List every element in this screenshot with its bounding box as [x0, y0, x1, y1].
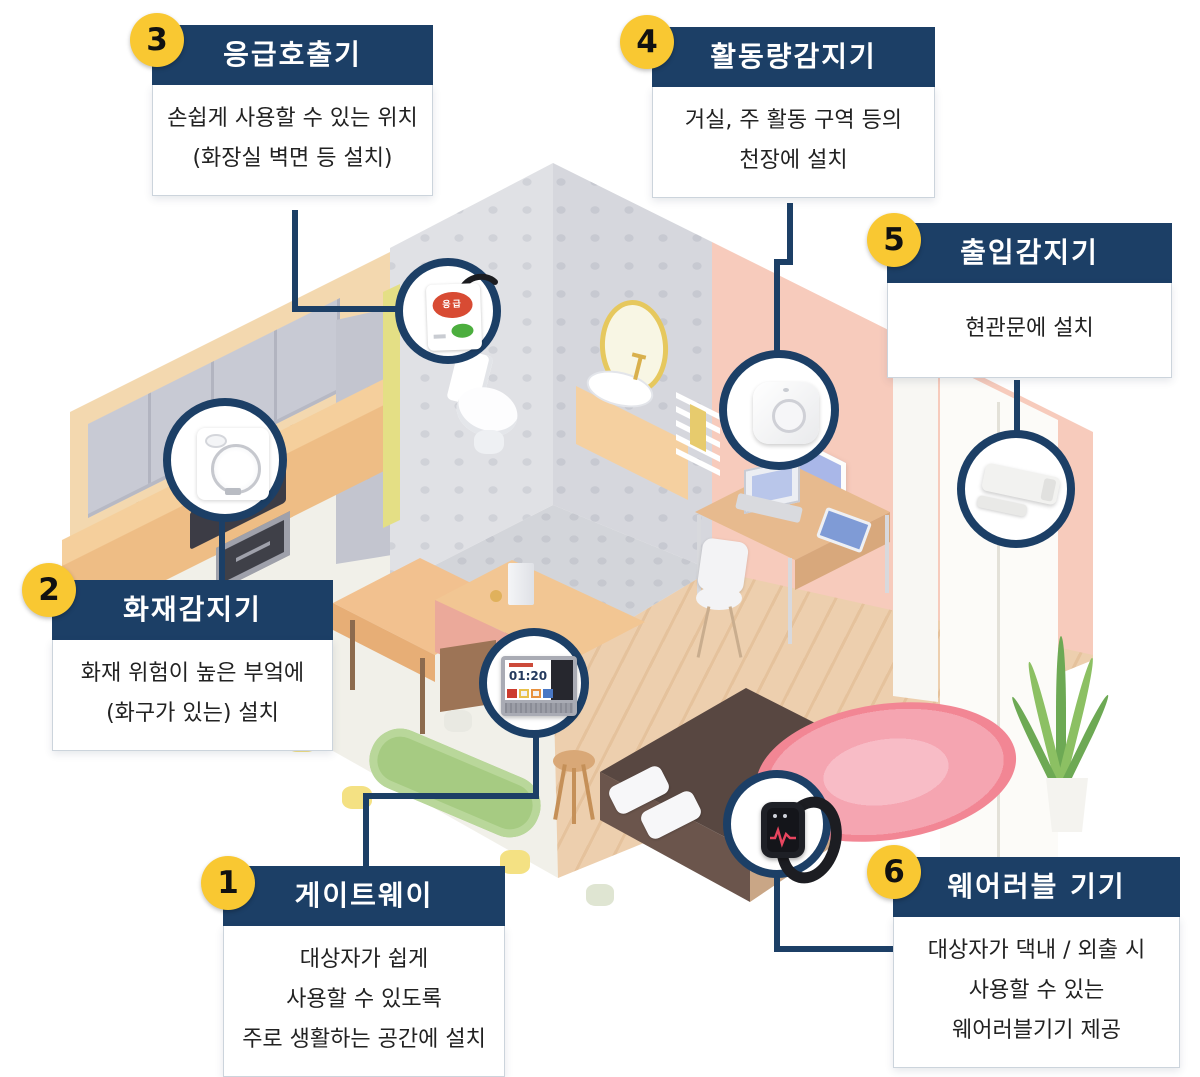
gateway-orange-button	[531, 689, 541, 698]
table-leg	[420, 658, 425, 734]
activity-sensor-spot	[719, 350, 839, 470]
callout-line: 대상자가 쉽게	[230, 940, 498, 980]
fire-detector-sensor	[211, 444, 261, 494]
stool-leg	[572, 768, 576, 824]
gateway-buttons	[507, 689, 553, 698]
connector-line	[774, 259, 780, 353]
callout-activity-sensor: 4 활동량감지기 거실, 주 활동 구역 등의 천장에 설치	[652, 27, 935, 198]
step-number-badge: 3	[130, 13, 184, 67]
emergency-caller-spot: 응급	[395, 258, 501, 364]
desk-leg	[885, 515, 889, 593]
activity-sensor-lens	[772, 399, 806, 433]
callout-line: 사용할 수 있도록	[230, 980, 498, 1020]
speaker-box	[508, 563, 534, 605]
fire-detector-spot	[163, 398, 287, 522]
callout-body: 대상자가 댁내 / 외출 시 사용할 수 있는 웨어러블기기 제공	[893, 917, 1180, 1068]
callout-line: 현관문에 설치	[894, 309, 1165, 349]
infographic-stage: 01:20 응급	[0, 0, 1200, 1070]
callout-body: 거실, 주 활동 구역 등의 천장에 설치	[652, 87, 935, 198]
device-slot	[434, 334, 446, 338]
connector-line	[363, 793, 369, 870]
callout-emergency-caller: 3 응급호출기 손쉽게 사용할 수 있는 위치 (화장실 벽면 등 설치)	[152, 25, 433, 196]
gateway-blue-button	[543, 689, 553, 698]
connector-line	[1014, 380, 1020, 433]
cancel-button	[451, 323, 473, 338]
callout-fire-detector: 2 화재감지기 화재 위험이 높은 부엌에 (화구가 있는) 설치	[52, 580, 333, 751]
gateway-screen: 01:20	[505, 660, 573, 700]
step-number-badge: 1	[201, 856, 255, 910]
callout-line: (화구가 있는) 설치	[59, 694, 326, 734]
callout-title: 게이트웨이	[223, 866, 505, 926]
fire-detector-icon	[197, 428, 269, 500]
callout-title: 활동량감지기	[652, 27, 935, 87]
heart-rate-graph	[767, 808, 799, 852]
table-leg	[350, 620, 355, 690]
callout-line: 손쉽게 사용할 수 있는 위치	[159, 99, 426, 139]
callout-line: 대상자가 댁내 / 외출 시	[900, 931, 1173, 971]
callout-body: 대상자가 쉽게 사용할 수 있도록 주로 생활하는 공간에 설치	[223, 926, 505, 1077]
connector-line	[292, 210, 298, 312]
gateway-speaker-grille	[505, 703, 573, 713]
connector-line	[219, 519, 225, 583]
gateway-red-button	[507, 689, 517, 698]
connector-line	[292, 306, 398, 312]
connector-line	[787, 203, 793, 265]
callout-wearable-device: 6 웨어러블 기기 대상자가 댁내 / 외출 시 사용할 수 있는 웨어러블기기…	[893, 857, 1180, 1068]
emergency-caller-icon: 응급	[426, 283, 482, 351]
gateway-alert-strip	[509, 663, 533, 667]
floor-tile-accent	[444, 710, 472, 732]
connector-line	[774, 876, 780, 952]
connector-line	[533, 733, 539, 799]
connector-line	[363, 793, 539, 799]
toilet-base	[474, 430, 504, 454]
callout-title: 출입감지기	[887, 223, 1172, 283]
callout-line: (화장실 벽면 등 설치)	[159, 139, 426, 179]
gateway-clock: 01:20	[505, 669, 551, 683]
emergency-button: 응급	[432, 291, 473, 318]
callout-title: 화재감지기	[52, 580, 333, 640]
gateway-device-spot: 01:20	[479, 628, 589, 738]
chair-seat	[696, 586, 742, 610]
callout-body: 화재 위험이 높은 부엌에 (화구가 있는) 설치	[52, 640, 333, 751]
towel	[690, 404, 706, 452]
entry-sensor-spot	[957, 430, 1075, 548]
wearable-watch-icon	[761, 802, 805, 858]
callout-body: 손쉽게 사용할 수 있는 위치 (화장실 벽면 등 설치)	[152, 85, 433, 196]
gateway-screen-panel: 01:20	[505, 660, 551, 700]
callout-line: 사용할 수 있는	[900, 971, 1173, 1011]
table-lamp	[490, 590, 502, 602]
step-number-badge: 6	[867, 845, 921, 899]
callout-body: 현관문에 설치	[887, 283, 1172, 378]
callout-title: 응급호출기	[152, 25, 433, 85]
callout-entry-sensor: 5 출입감지기 현관문에 설치	[887, 223, 1172, 378]
callout-line: 주로 생활하는 공간에 설치	[230, 1020, 498, 1060]
gateway-yellow-button	[519, 689, 529, 698]
watch-screen	[767, 808, 799, 852]
step-number-badge: 2	[22, 563, 76, 617]
step-number-badge: 5	[867, 213, 921, 267]
callout-gateway: 1 게이트웨이 대상자가 쉽게 사용할 수 있도록 주로 생활하는 공간에 설치	[223, 866, 505, 1077]
floor-tile-accent	[586, 884, 614, 906]
callout-line: 화재 위험이 높은 부엌에	[59, 654, 326, 694]
desk-leg	[788, 558, 792, 644]
callout-line: 거실, 주 활동 구역 등의	[659, 101, 928, 141]
callout-line: 천장에 설치	[659, 141, 928, 181]
activity-sensor-icon	[753, 382, 819, 444]
connector-line	[774, 946, 895, 952]
entry-sensor-cap	[1040, 478, 1056, 502]
step-number-badge: 4	[620, 15, 674, 69]
wearable-device-spot	[723, 770, 831, 878]
activity-sensor-led	[783, 388, 789, 392]
callout-line: 웨어러블기기 제공	[900, 1011, 1173, 1051]
fire-detector-base	[225, 488, 241, 495]
gateway-device-icon: 01:20	[501, 656, 577, 716]
callout-title: 웨어러블 기기	[893, 857, 1180, 917]
